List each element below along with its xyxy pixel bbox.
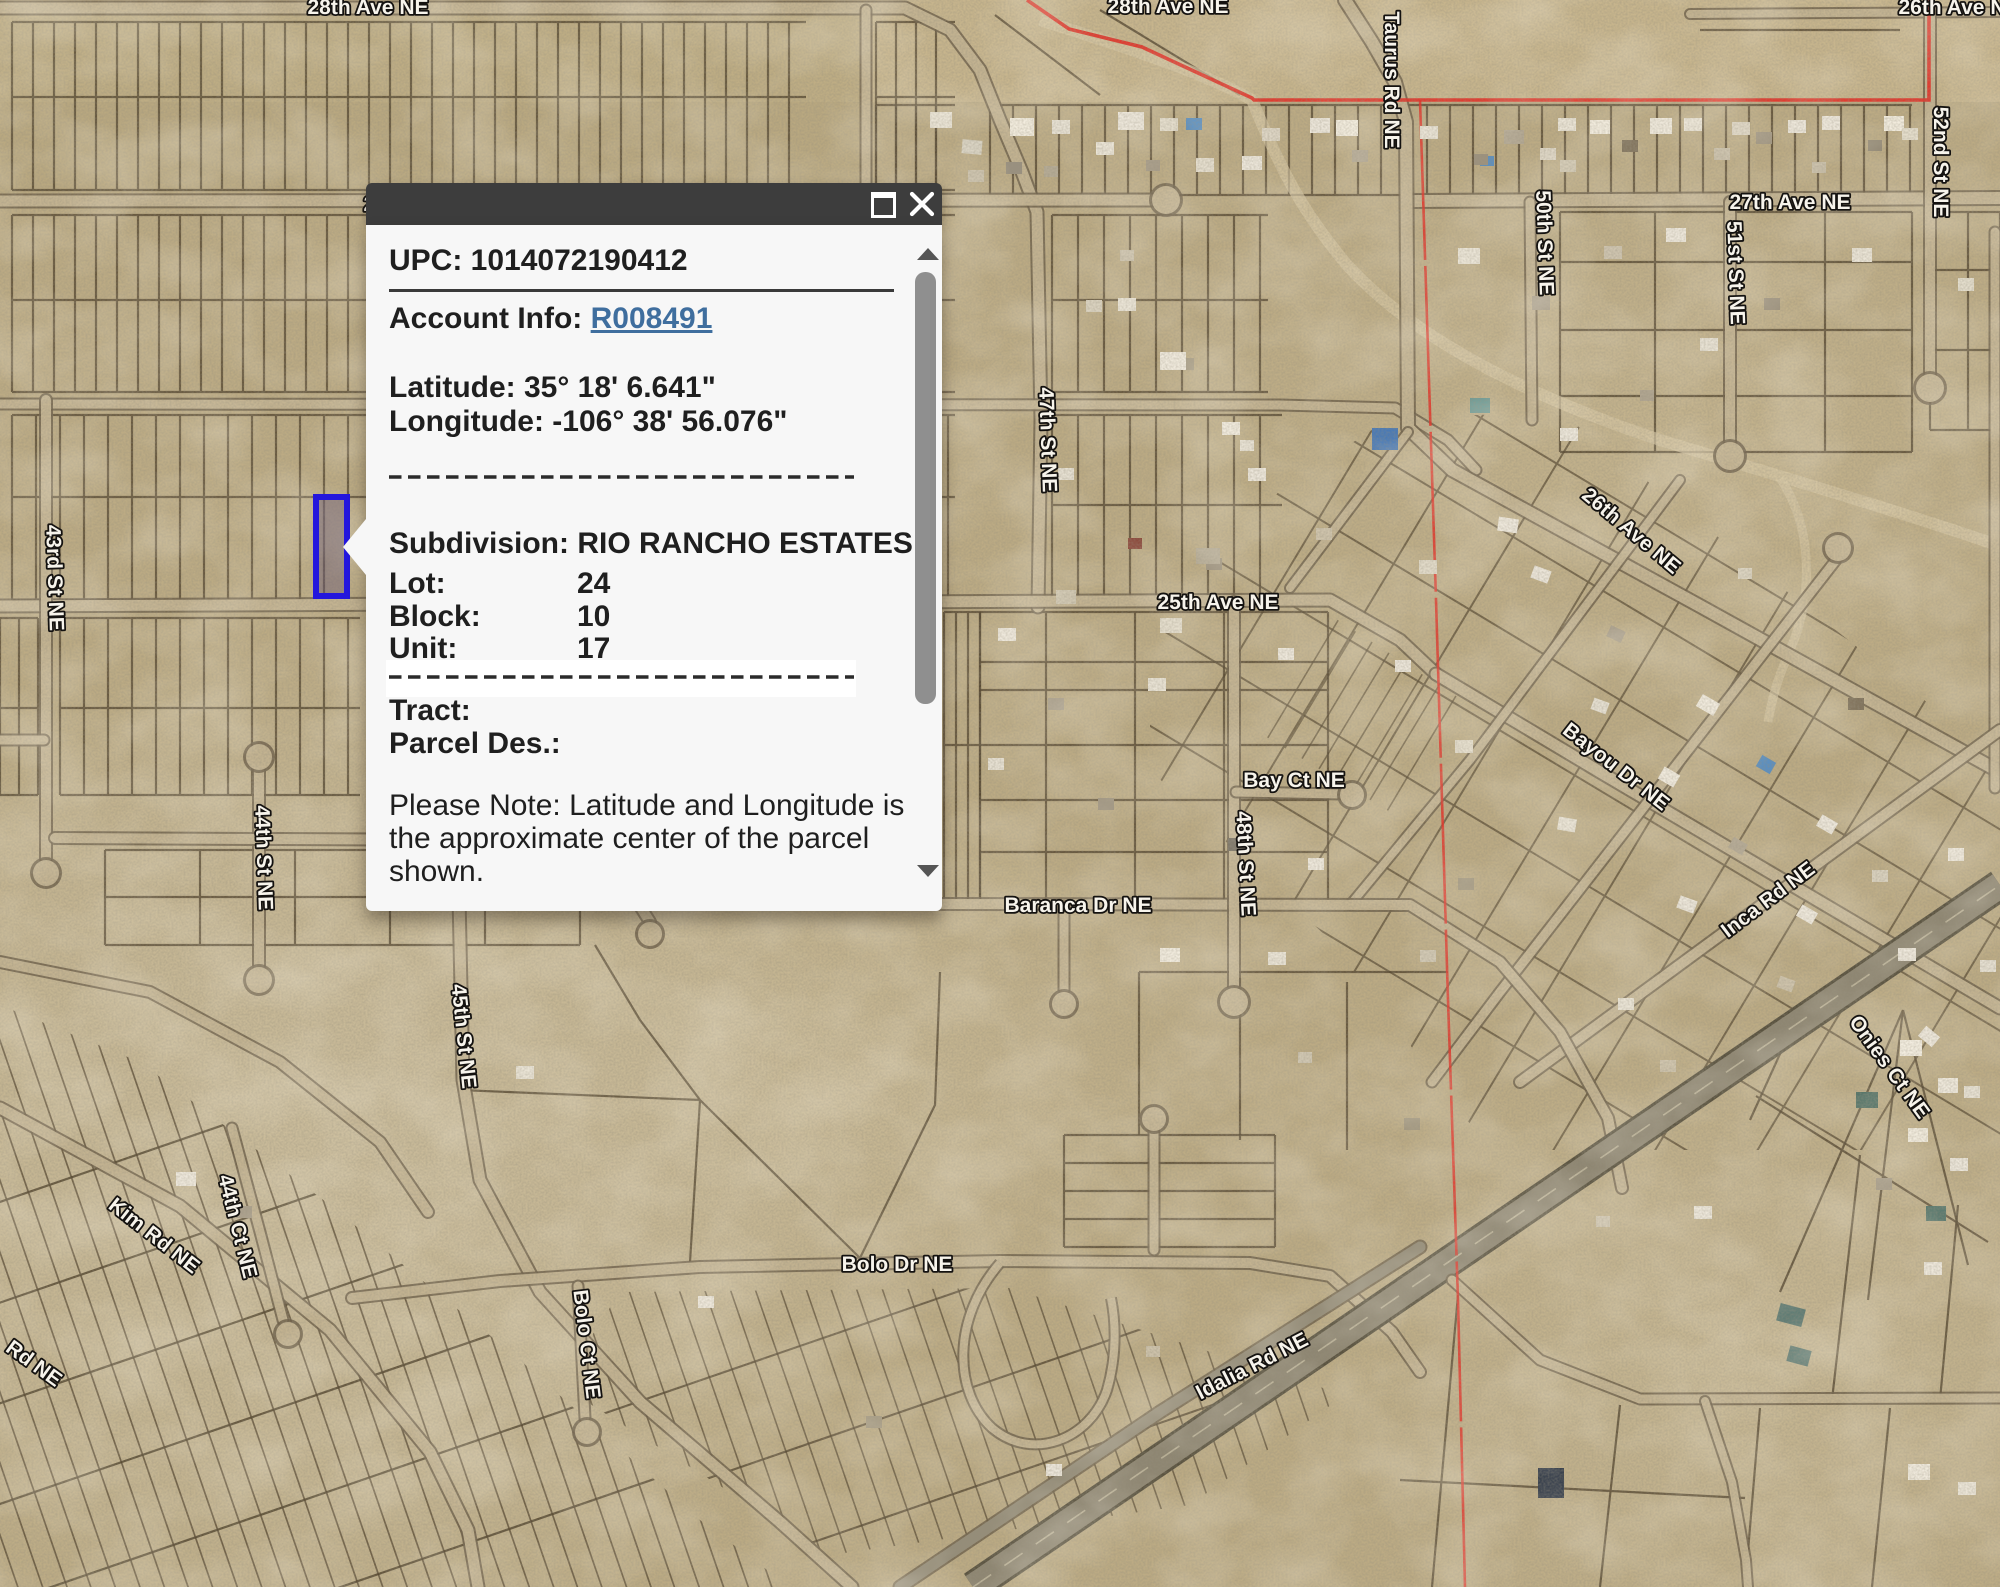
svg-text:25th Ave NE: 25th Ave NE: [1158, 591, 1279, 614]
svg-text:47th St NE: 47th St NE: [1034, 387, 1061, 493]
svg-text:28th Ave NE: 28th Ave NE: [308, 0, 429, 19]
svg-text:27th Ave NE: 27th Ave NE: [1730, 191, 1851, 214]
svg-text:26th Ave N: 26th Ave N: [1899, 0, 2000, 19]
svg-text:Bolo Dr NE: Bolo Dr NE: [842, 1253, 953, 1276]
svg-text:44th St NE: 44th St NE: [250, 805, 277, 911]
svg-text:43rd St NE: 43rd St NE: [41, 524, 68, 631]
svg-text:28th Ave NE: 28th Ave NE: [1108, 0, 1229, 18]
svg-text:Bay Ct NE: Bay Ct NE: [1243, 769, 1345, 792]
svg-text:51st St NE: 51st St NE: [1722, 220, 1749, 325]
svg-text:52nd St NE: 52nd St NE: [1929, 107, 1952, 218]
svg-text:50th St NE: 50th St NE: [1531, 190, 1558, 296]
svg-text:Baranca Dr NE: Baranca Dr NE: [1004, 894, 1151, 917]
svg-text:Taurus Rd NE: Taurus Rd NE: [1380, 11, 1403, 148]
